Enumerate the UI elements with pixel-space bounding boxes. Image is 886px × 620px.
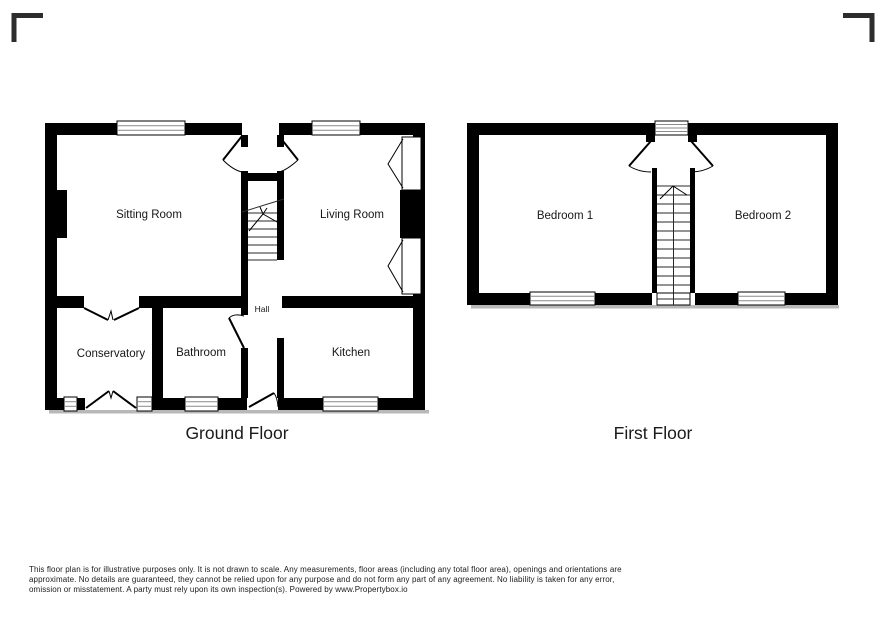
window <box>655 121 688 135</box>
wall <box>152 308 163 398</box>
room-label-sitting-room: Sitting Room <box>116 209 182 221</box>
wall <box>45 398 64 410</box>
first-floor-shadow <box>471 305 839 309</box>
wall <box>77 398 85 410</box>
wall <box>45 123 57 410</box>
wall <box>826 123 838 305</box>
wall <box>595 293 652 305</box>
wall <box>282 296 425 308</box>
ground-floor-plan: Sitting Room Living Room Hall Conservato… <box>45 121 429 443</box>
window <box>137 397 152 411</box>
window <box>323 397 378 411</box>
wall <box>139 296 242 308</box>
window <box>185 397 218 411</box>
floor-title-ground: Ground Floor <box>185 423 288 443</box>
wall <box>467 123 479 305</box>
stair-shaft-bottom <box>657 293 690 305</box>
window <box>312 121 360 135</box>
sitting-to-conservatory-doors <box>84 308 139 320</box>
disclaimer-text: This floor plan is for illustrative purp… <box>29 565 659 595</box>
room-label-living-room: Living Room <box>320 209 384 221</box>
ground-floor-walls <box>45 123 425 410</box>
room-label-conservatory: Conservatory <box>77 348 146 360</box>
wall <box>218 398 247 410</box>
wall <box>277 338 284 398</box>
corner-mark-top-right <box>843 16 872 43</box>
room-label-kitchen: Kitchen <box>332 347 370 359</box>
chimney-breast <box>45 190 67 238</box>
wall-pier <box>400 190 413 238</box>
wall <box>45 296 84 308</box>
window <box>738 292 785 305</box>
room-label-bathroom: Bathroom <box>176 347 226 359</box>
wall <box>467 123 655 135</box>
conservatory-french-doors <box>86 391 136 408</box>
first-floor-staircase <box>657 186 690 305</box>
disclaimer-line-2: approximate. No details are guaranteed, … <box>29 575 659 585</box>
wall <box>652 168 657 293</box>
corner-mark-top-left <box>14 16 43 43</box>
wall <box>688 135 697 142</box>
wall <box>279 123 312 135</box>
window <box>388 137 421 190</box>
wall <box>785 293 838 305</box>
disclaimer-line-3: omission or misstatement. A party must r… <box>29 585 659 595</box>
wall <box>152 398 185 410</box>
wall <box>695 293 738 305</box>
room-label-bedroom-1: Bedroom 1 <box>537 210 593 222</box>
wall <box>690 168 695 293</box>
room-label-hall: Hall <box>255 304 270 314</box>
landing-doors <box>629 141 713 172</box>
wall <box>241 348 248 398</box>
window <box>388 238 421 294</box>
wall <box>241 171 248 315</box>
room-label-bedroom-2: Bedroom 2 <box>735 210 791 222</box>
wall <box>467 293 530 305</box>
wall <box>277 171 284 260</box>
bathroom-door <box>229 315 244 348</box>
disclaimer-line-1: This floor plan is for illustrative purp… <box>29 565 659 575</box>
wall <box>278 398 323 410</box>
stair-direction-arrow <box>249 214 277 231</box>
wall <box>185 123 242 135</box>
front-entrance-doors <box>223 136 298 172</box>
floor-title-first: First Floor <box>614 423 693 443</box>
wall <box>688 123 838 135</box>
wall <box>378 398 425 410</box>
hall-back-door <box>249 393 278 407</box>
window <box>117 121 185 135</box>
wall <box>241 173 284 181</box>
floorplan-canvas: Sitting Room Living Room Hall Conservato… <box>0 0 886 560</box>
window <box>64 397 77 411</box>
window <box>530 292 595 305</box>
first-floor-plan: Bedroom 1 Bedroom 2 First Floor <box>467 121 839 443</box>
